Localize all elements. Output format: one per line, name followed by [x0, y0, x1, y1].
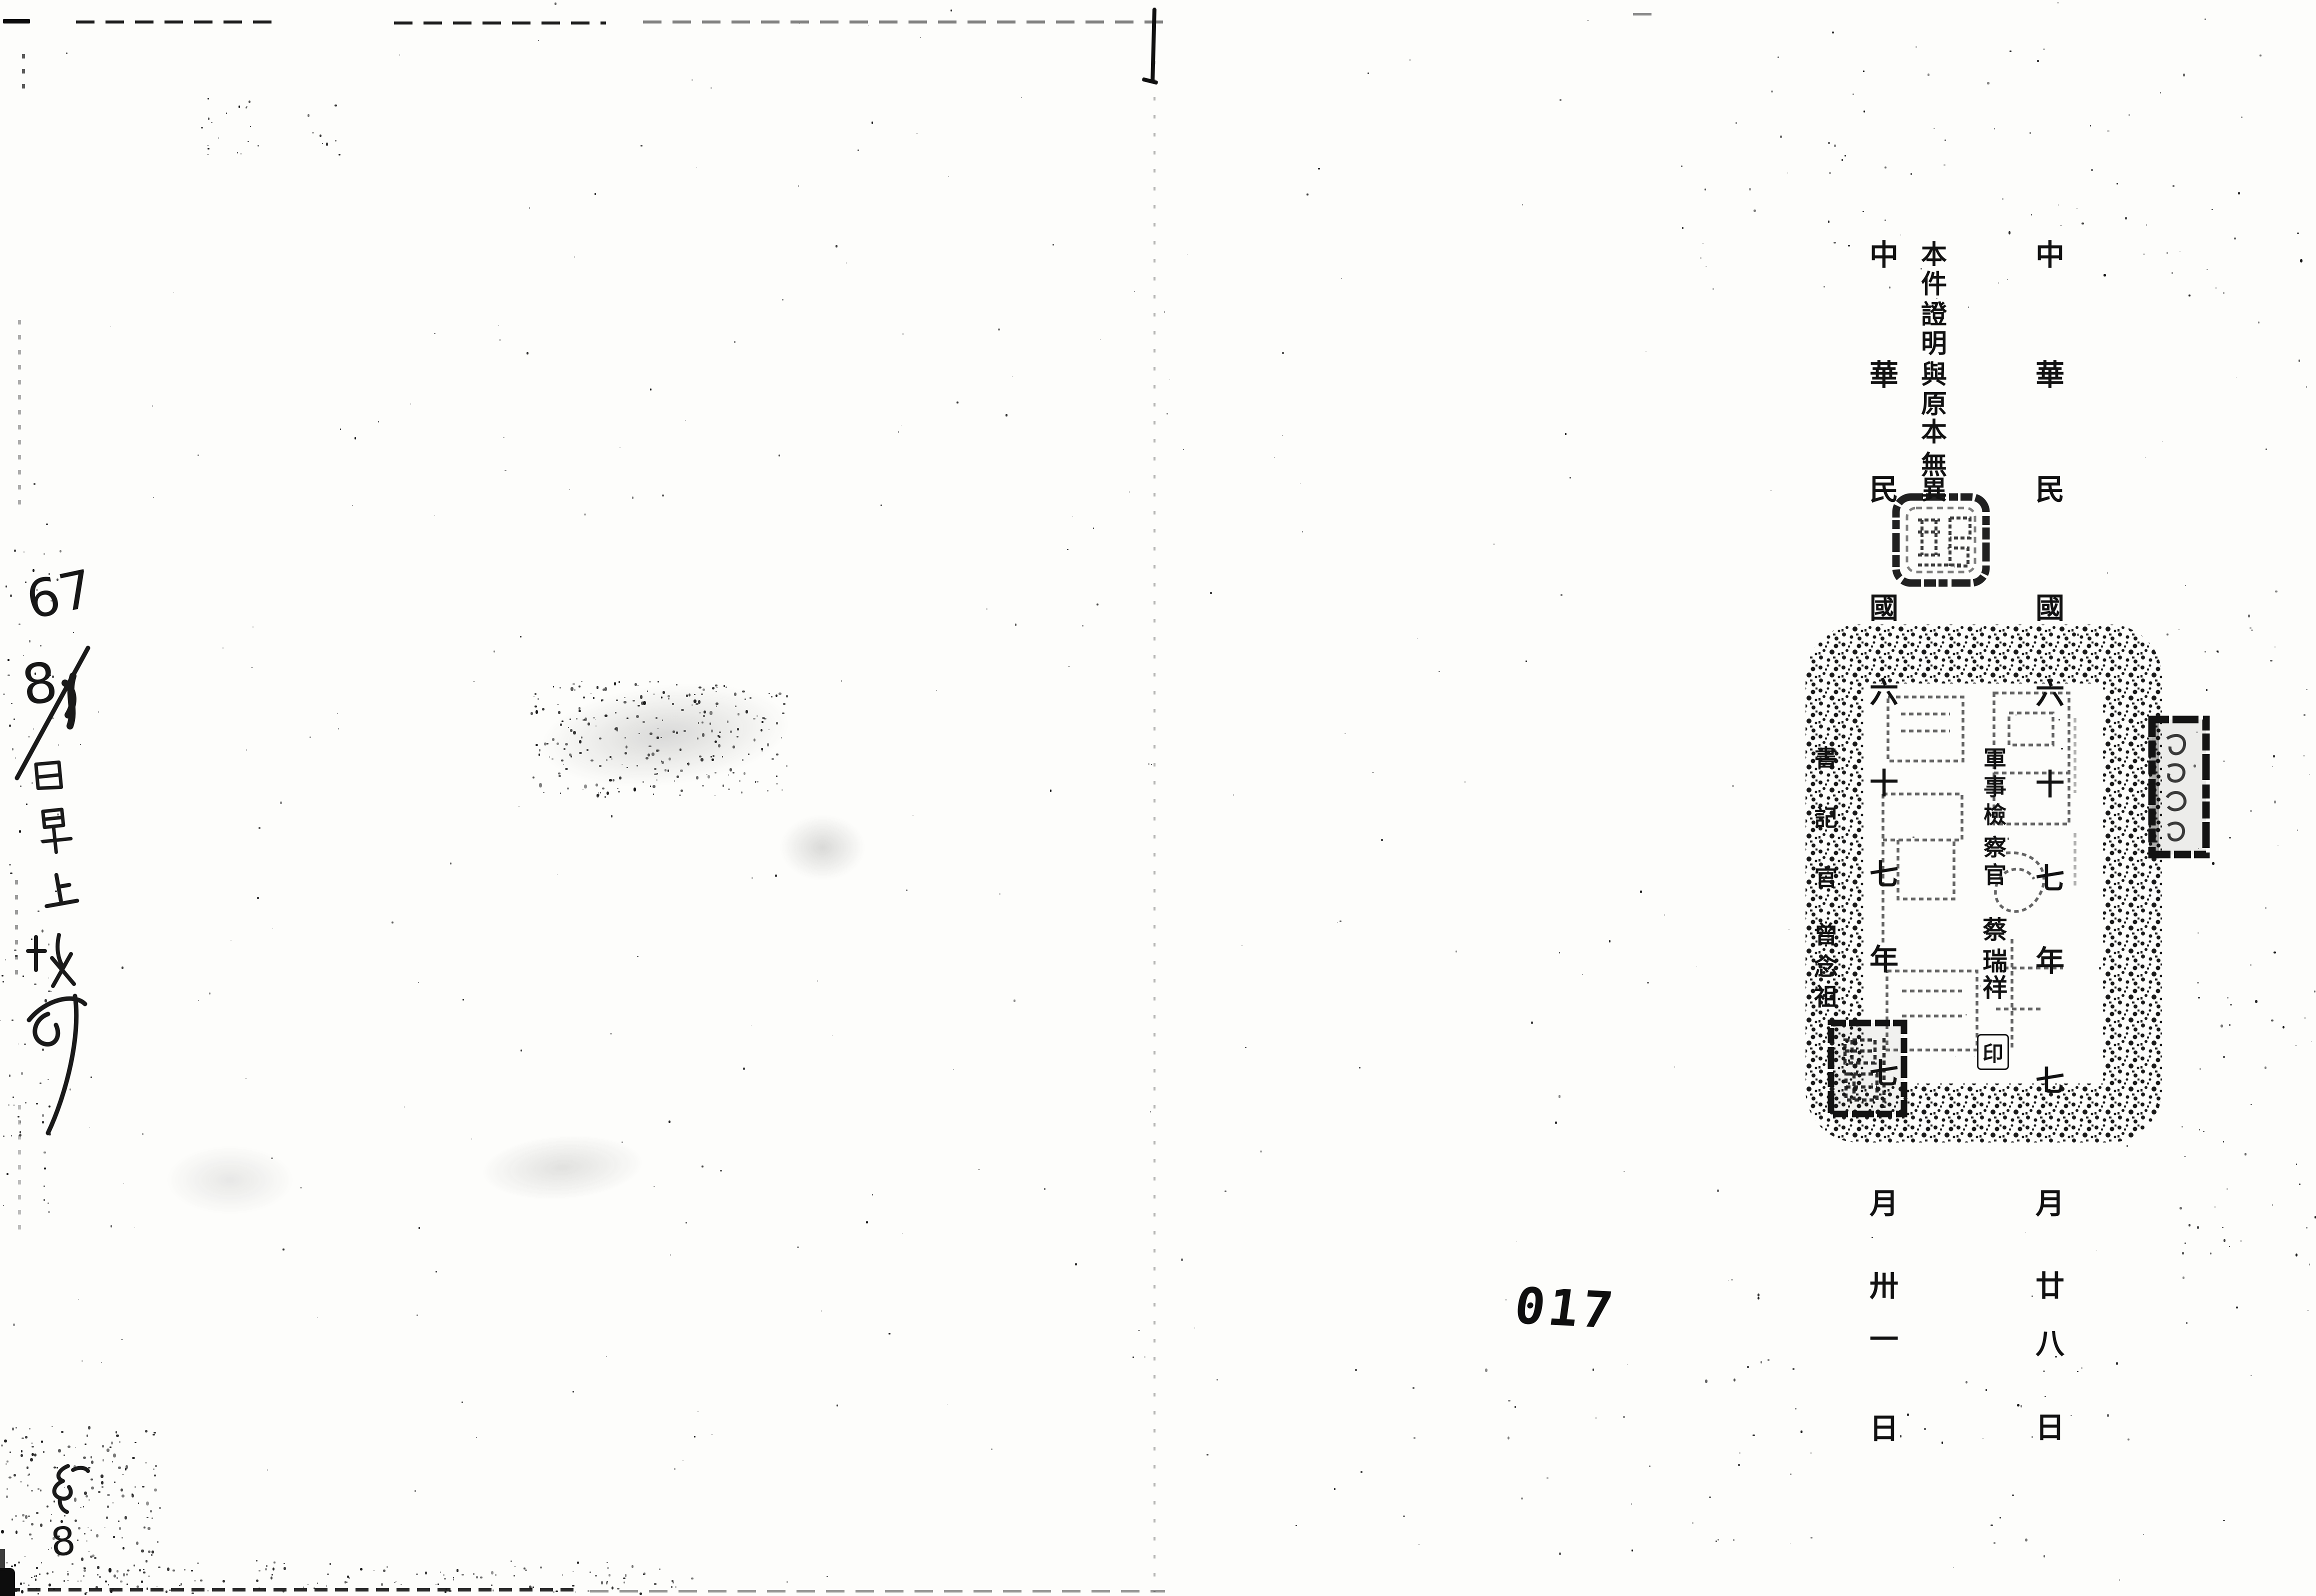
handwritten-bottom-number: 8 — [49, 1518, 77, 1565]
prosecutor-name-column: 蔡瑞祥 — [1982, 0, 2007, 1596]
top-edge-line — [643, 20, 1171, 23]
prosecutor-date-column: 中華民國六十七年七月廿八日 — [2035, 0, 2064, 1596]
clerk-date-column: 中華民國六十七年七月卅一日 — [1869, 0, 1898, 1596]
bottom-edge-line — [590, 1590, 1165, 1592]
scan-smudge — [780, 815, 865, 880]
clerk-name-column: 曾念祖 — [1814, 0, 1838, 1596]
scan-smudge — [165, 1145, 295, 1215]
prosecutor-seal-mark-box: 印 — [1977, 1034, 2009, 1070]
top-edge-mark — [1633, 13, 1655, 15]
certification-text-column: 本件證明與原本無異 — [1921, 0, 1947, 1596]
top-edge-mark — [3, 19, 30, 23]
handwritten-bottom-mark: 8 — [0, 1440, 130, 1590]
scanned-document-page: 本件證明與原本無異 中華民國六十七年七月廿八日 中華民國六十七年七月卅一日 軍事… — [0, 0, 2316, 1596]
page-fold-line — [1153, 7, 1155, 1592]
scan-smudge — [535, 672, 794, 797]
left-edge-mark — [22, 54, 25, 89]
left-edge-mark — [18, 320, 21, 515]
top-edge-line — [394, 21, 606, 24]
scan-smudge — [478, 1129, 647, 1206]
edge-seal — [2145, 712, 2220, 867]
handwritten-day — [65, 676, 73, 726]
top-edge-line — [76, 20, 282, 23]
handwritten-note: 67 8 — [0, 550, 150, 1160]
page-fold-line — [1142, 77, 1158, 85]
page-number: 017 — [1511, 1276, 1620, 1340]
handwritten-year: 67 — [21, 558, 98, 631]
